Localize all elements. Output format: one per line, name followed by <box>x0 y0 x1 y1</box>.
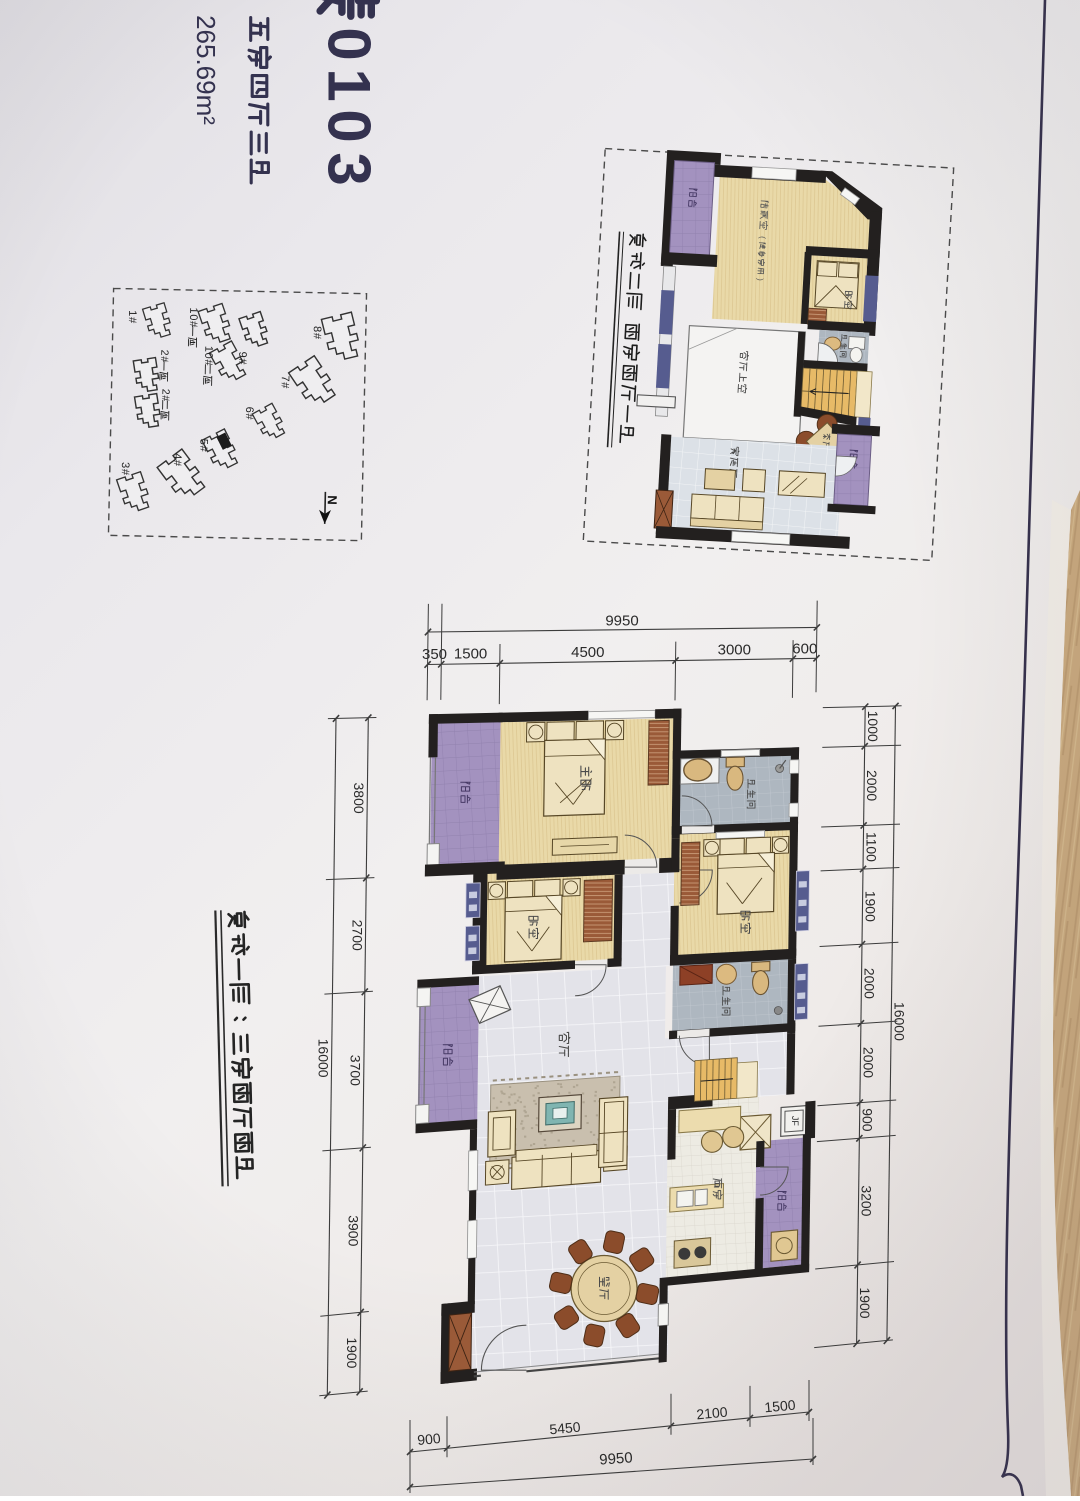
svg-text:265.69m²: 265.69m² <box>191 15 221 125</box>
svg-text:350: 350 <box>422 646 447 663</box>
svg-text:9950: 9950 <box>599 1449 633 1468</box>
svg-text:JF: JF <box>790 1116 800 1127</box>
svg-text:3000: 3000 <box>718 642 751 659</box>
svg-text:7: 7 <box>279 375 291 381</box>
svg-text:6: 6 <box>243 407 255 413</box>
svg-text:1: 1 <box>316 68 383 101</box>
svg-text:1900: 1900 <box>857 1287 873 1318</box>
svg-text:3900: 3900 <box>346 1215 362 1246</box>
svg-text:1000: 1000 <box>865 711 881 742</box>
svg-text:0: 0 <box>202 352 214 358</box>
svg-text:9: 9 <box>236 351 248 357</box>
svg-text:600: 600 <box>792 641 817 658</box>
svg-text:2700: 2700 <box>350 920 366 951</box>
svg-text:2000: 2000 <box>864 770 880 801</box>
svg-text:0: 0 <box>316 109 383 142</box>
svg-text:0: 0 <box>316 27 383 60</box>
svg-text:1900: 1900 <box>863 891 879 922</box>
svg-text:900: 900 <box>860 1108 876 1132</box>
svg-text:3: 3 <box>119 462 131 468</box>
svg-text:2000: 2000 <box>861 1047 877 1078</box>
svg-text:#: # <box>159 395 171 401</box>
svg-text:4: 4 <box>171 453 183 459</box>
svg-text:1500: 1500 <box>454 646 487 663</box>
svg-text:0: 0 <box>187 314 199 320</box>
svg-text:5450: 5450 <box>549 1419 582 1438</box>
svg-text:5: 5 <box>197 439 209 445</box>
svg-text:3200: 3200 <box>859 1185 875 1216</box>
svg-text:1500: 1500 <box>764 1397 797 1416</box>
svg-text:3700: 3700 <box>348 1055 364 1086</box>
svg-text:2: 2 <box>159 389 171 395</box>
svg-text:3: 3 <box>316 152 383 185</box>
svg-text:1: 1 <box>126 310 138 316</box>
svg-text:1900: 1900 <box>344 1337 360 1368</box>
svg-text:1100: 1100 <box>863 832 879 862</box>
svg-text:1: 1 <box>202 346 214 352</box>
svg-text:2000: 2000 <box>862 968 878 999</box>
svg-text:2: 2 <box>158 350 170 356</box>
svg-text:8: 8 <box>311 326 323 332</box>
svg-text:1: 1 <box>187 307 199 313</box>
svg-text:4500: 4500 <box>571 644 604 661</box>
svg-text:3800: 3800 <box>351 783 367 814</box>
svg-text:16000: 16000 <box>316 1039 332 1078</box>
svg-text:9950: 9950 <box>605 613 638 630</box>
svg-text:2100: 2100 <box>696 1404 729 1423</box>
svg-text:900: 900 <box>417 1430 442 1448</box>
svg-text:N: N <box>325 495 340 505</box>
